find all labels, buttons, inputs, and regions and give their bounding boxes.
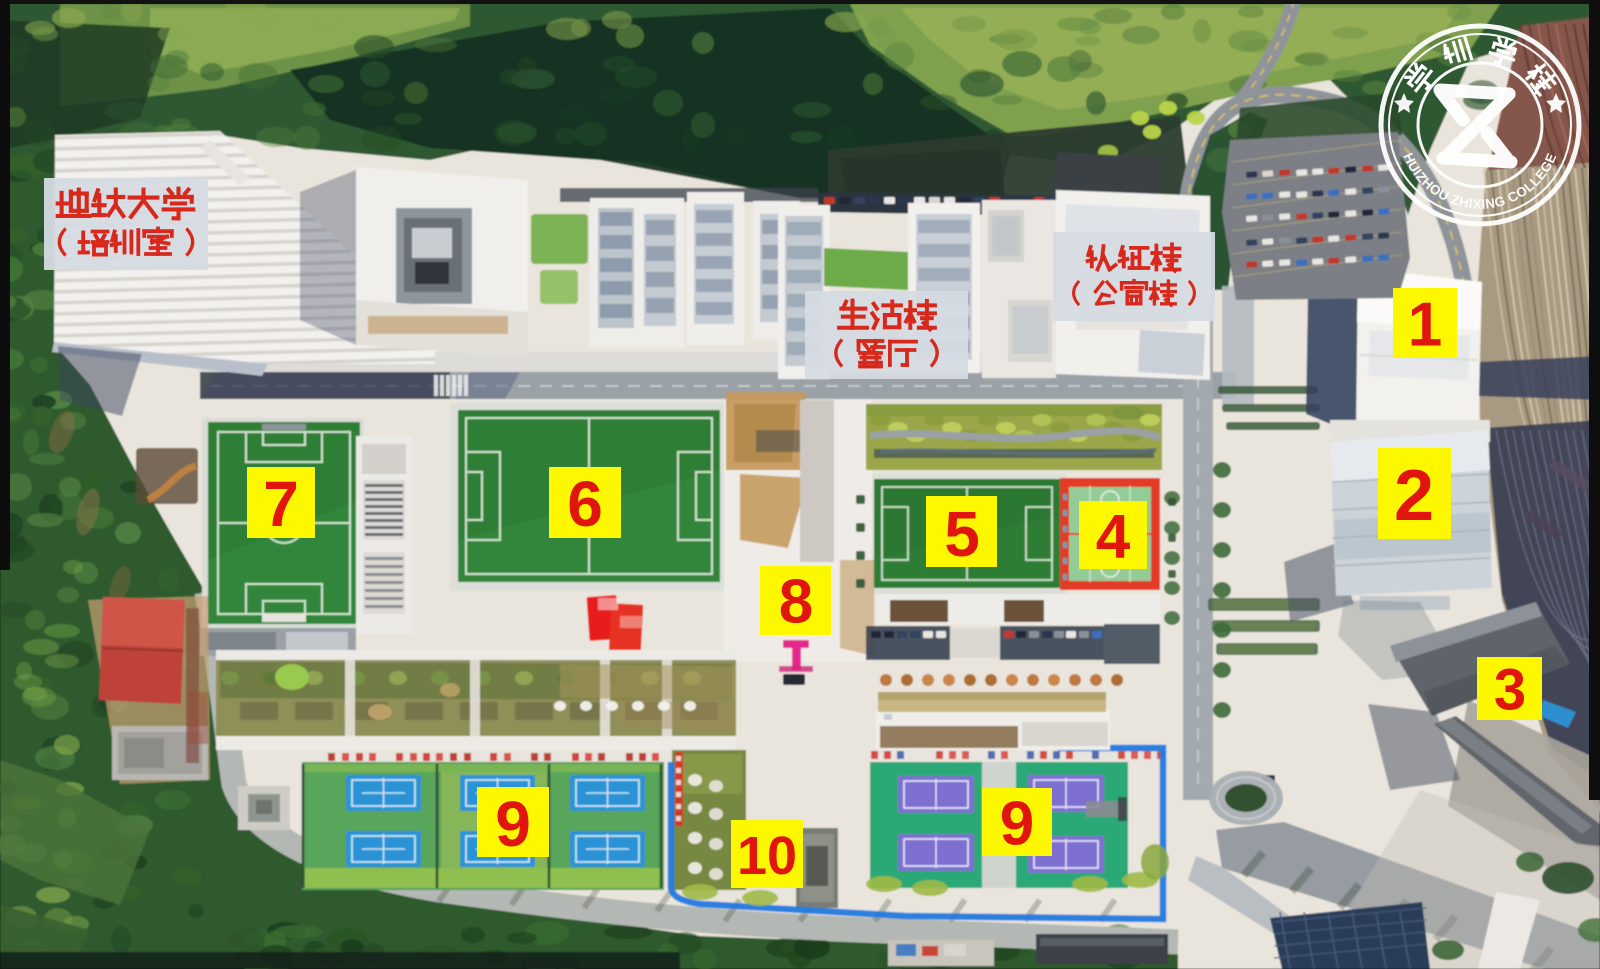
svg-text:7: 7: [263, 468, 299, 540]
svg-text:10: 10: [737, 826, 797, 886]
svg-text:1: 1: [1408, 291, 1442, 360]
svg-text:3: 3: [1494, 658, 1526, 723]
svg-text:6: 6: [567, 468, 603, 540]
svg-text:9: 9: [495, 788, 531, 860]
svg-text:5: 5: [944, 498, 980, 570]
svg-text:9: 9: [1000, 790, 1034, 859]
svg-text:2: 2: [1394, 456, 1434, 536]
svg-text:8: 8: [779, 568, 813, 637]
svg-text:4: 4: [1096, 503, 1131, 572]
